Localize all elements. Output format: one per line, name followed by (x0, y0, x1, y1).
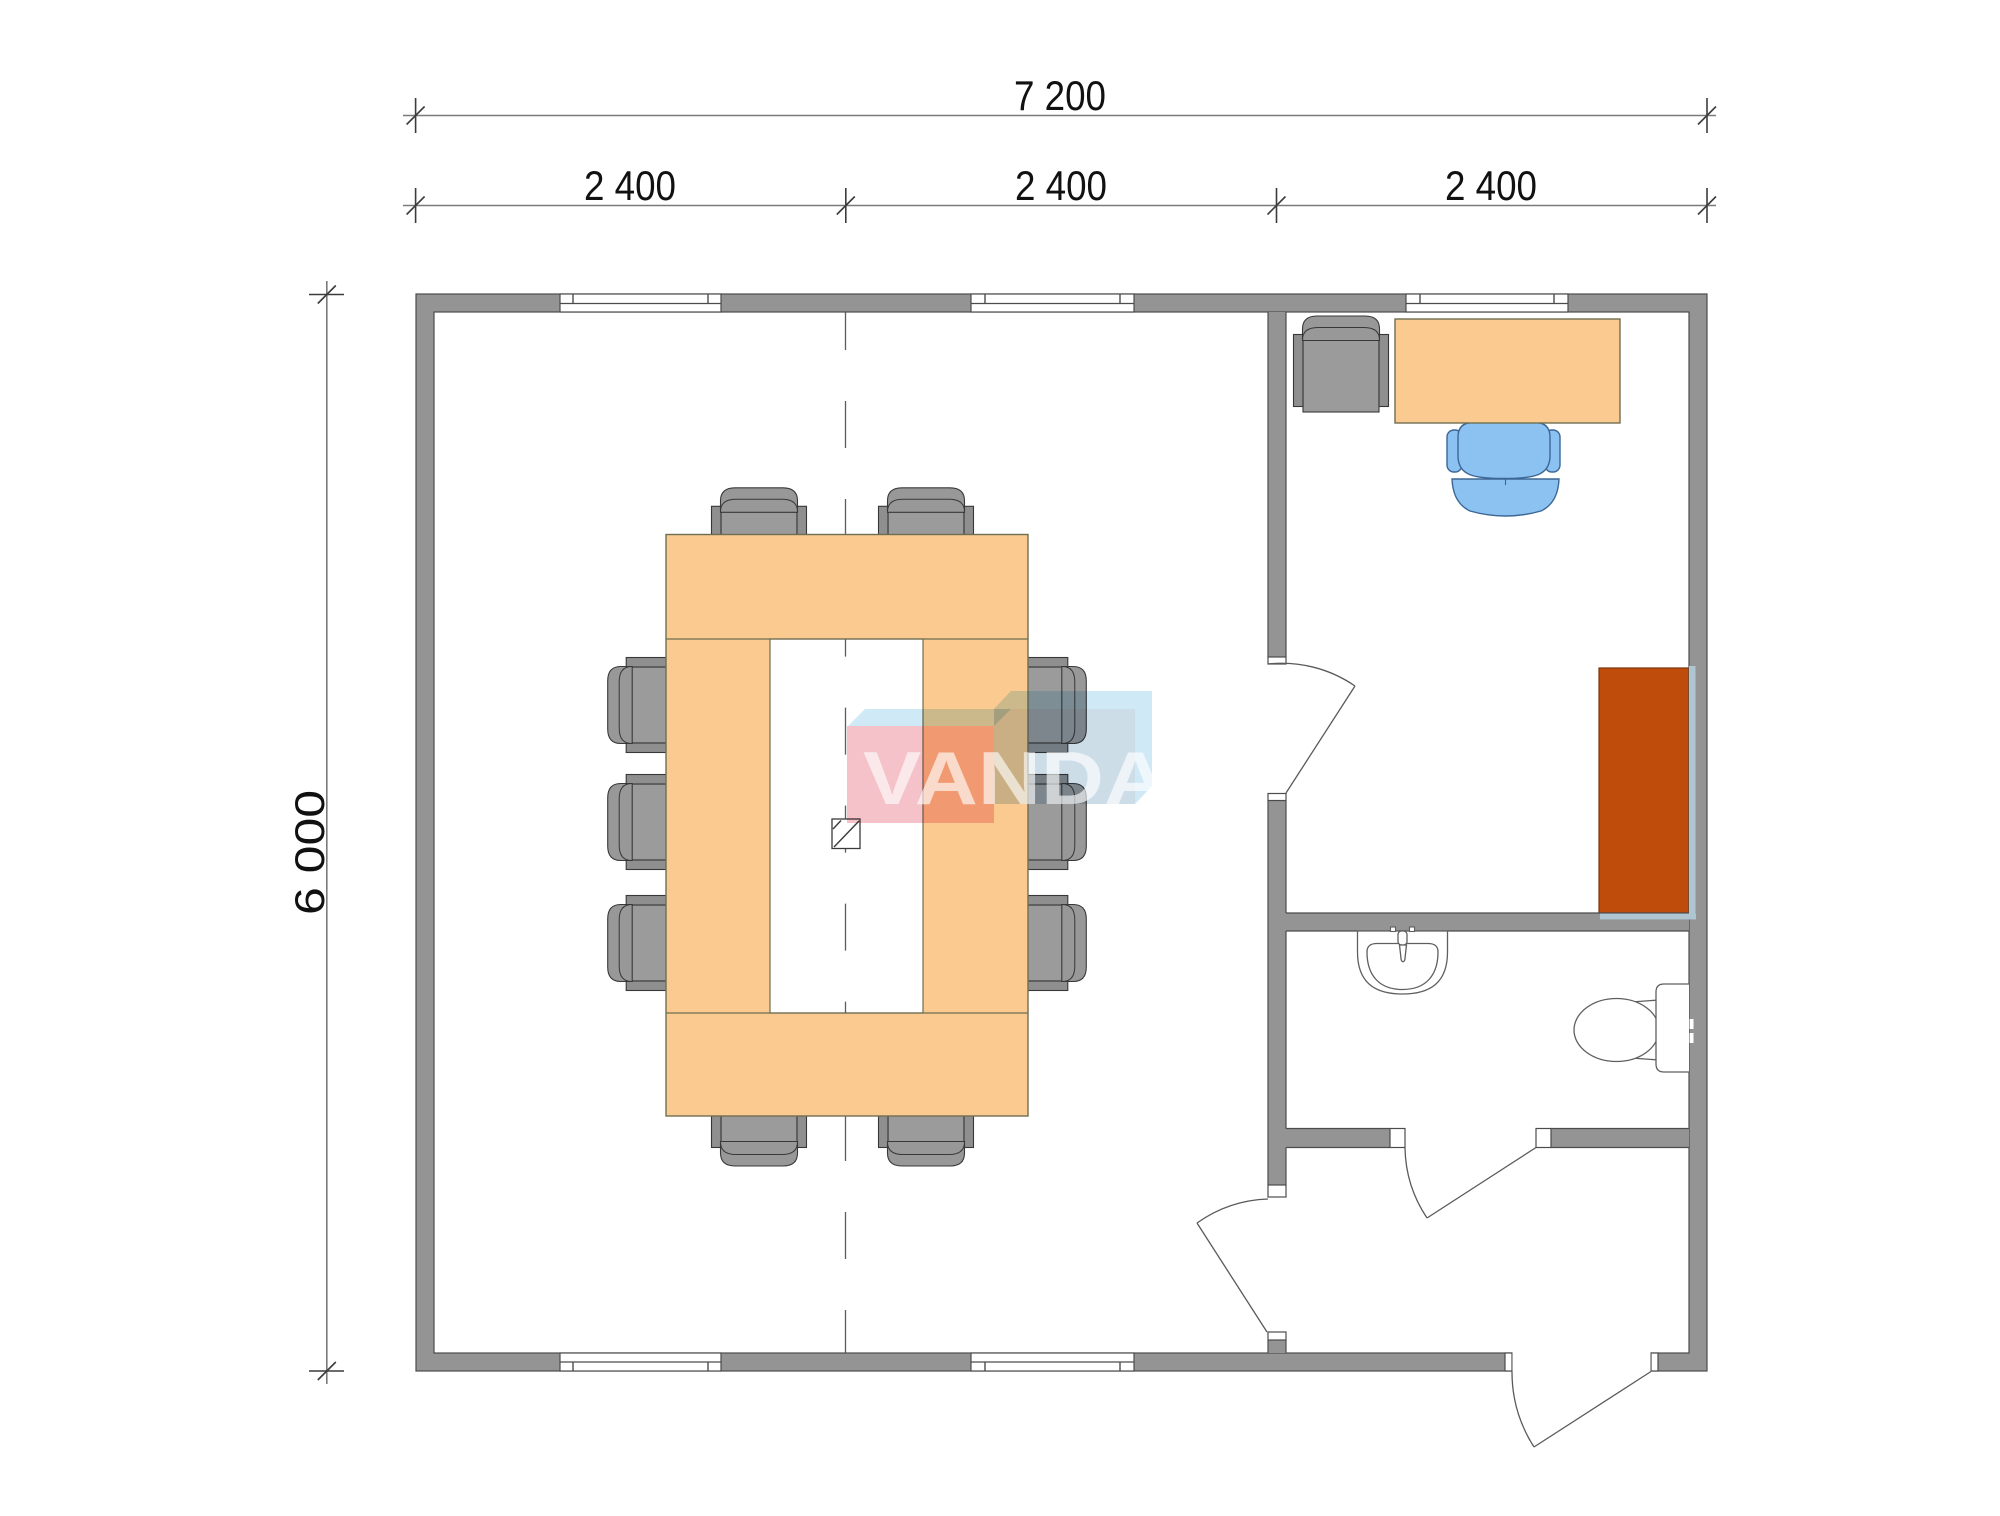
svg-text:2 400: 2 400 (1015, 162, 1107, 209)
svg-text:2 400: 2 400 (1445, 162, 1537, 209)
svg-text:VANDA: VANDA (863, 736, 1167, 820)
svg-text:6 000: 6 000 (286, 790, 333, 915)
svg-text:7 200: 7 200 (1014, 72, 1106, 119)
svg-text:2 400: 2 400 (584, 162, 676, 209)
